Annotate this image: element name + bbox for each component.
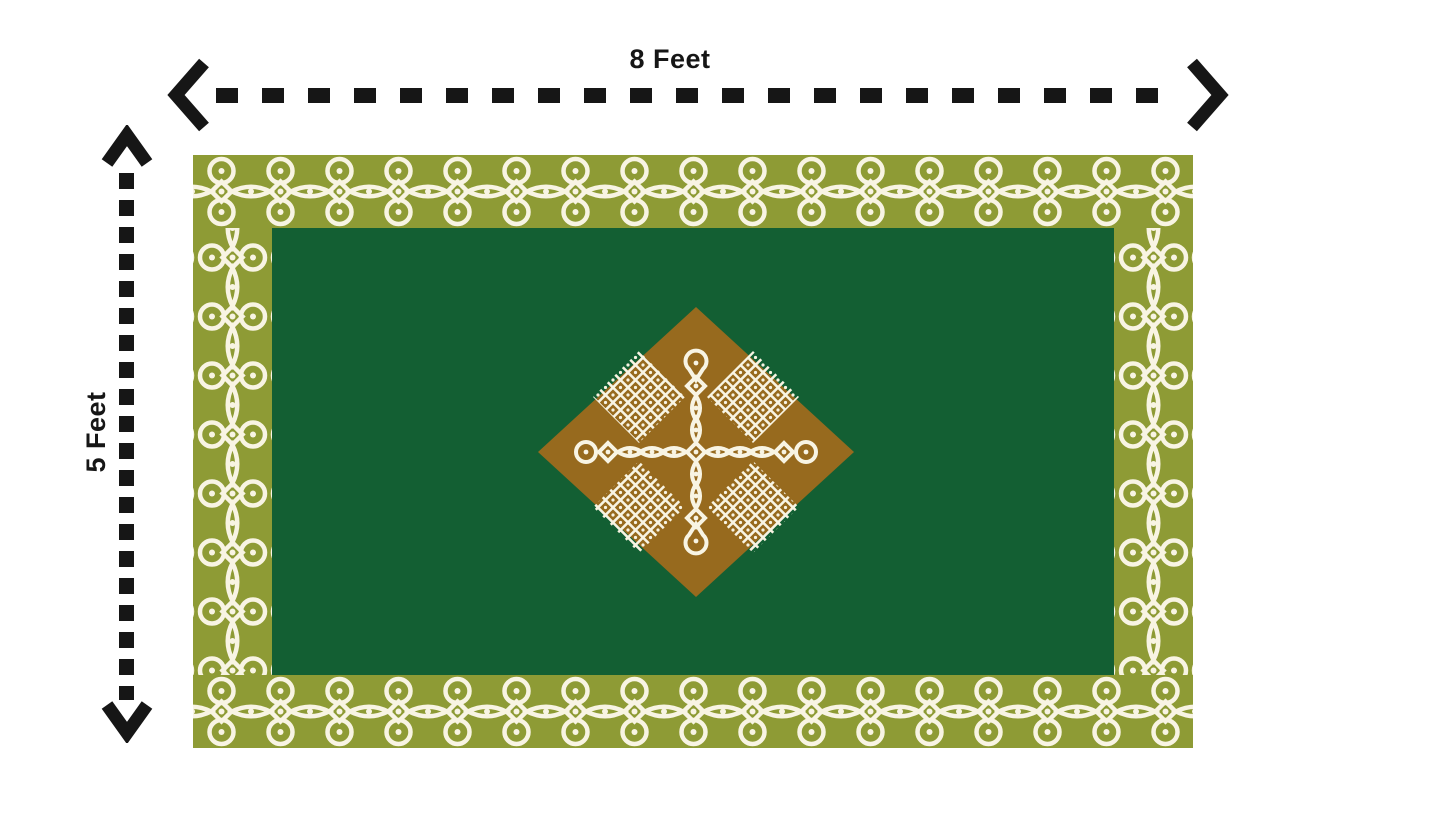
border-pattern-left (193, 228, 272, 675)
chevron-left-icon (166, 55, 218, 135)
diagram-canvas: 8 Feet 5 Feet (0, 0, 1445, 839)
chevron-up-icon (100, 125, 154, 171)
rangoli-mat (193, 155, 1193, 748)
chevron-right-icon (1178, 55, 1230, 135)
height-dimension-dashed-line (119, 173, 134, 700)
border-pattern-right (1114, 228, 1193, 675)
chevron-down-icon (100, 697, 154, 743)
height-dimension-label: 5 Feet (36, 372, 156, 492)
border-pattern-top (193, 155, 1193, 228)
border-pattern-bottom (193, 675, 1193, 748)
width-dimension-label: 8 Feet (540, 42, 800, 76)
width-dimension-dashed-line (216, 88, 1182, 103)
